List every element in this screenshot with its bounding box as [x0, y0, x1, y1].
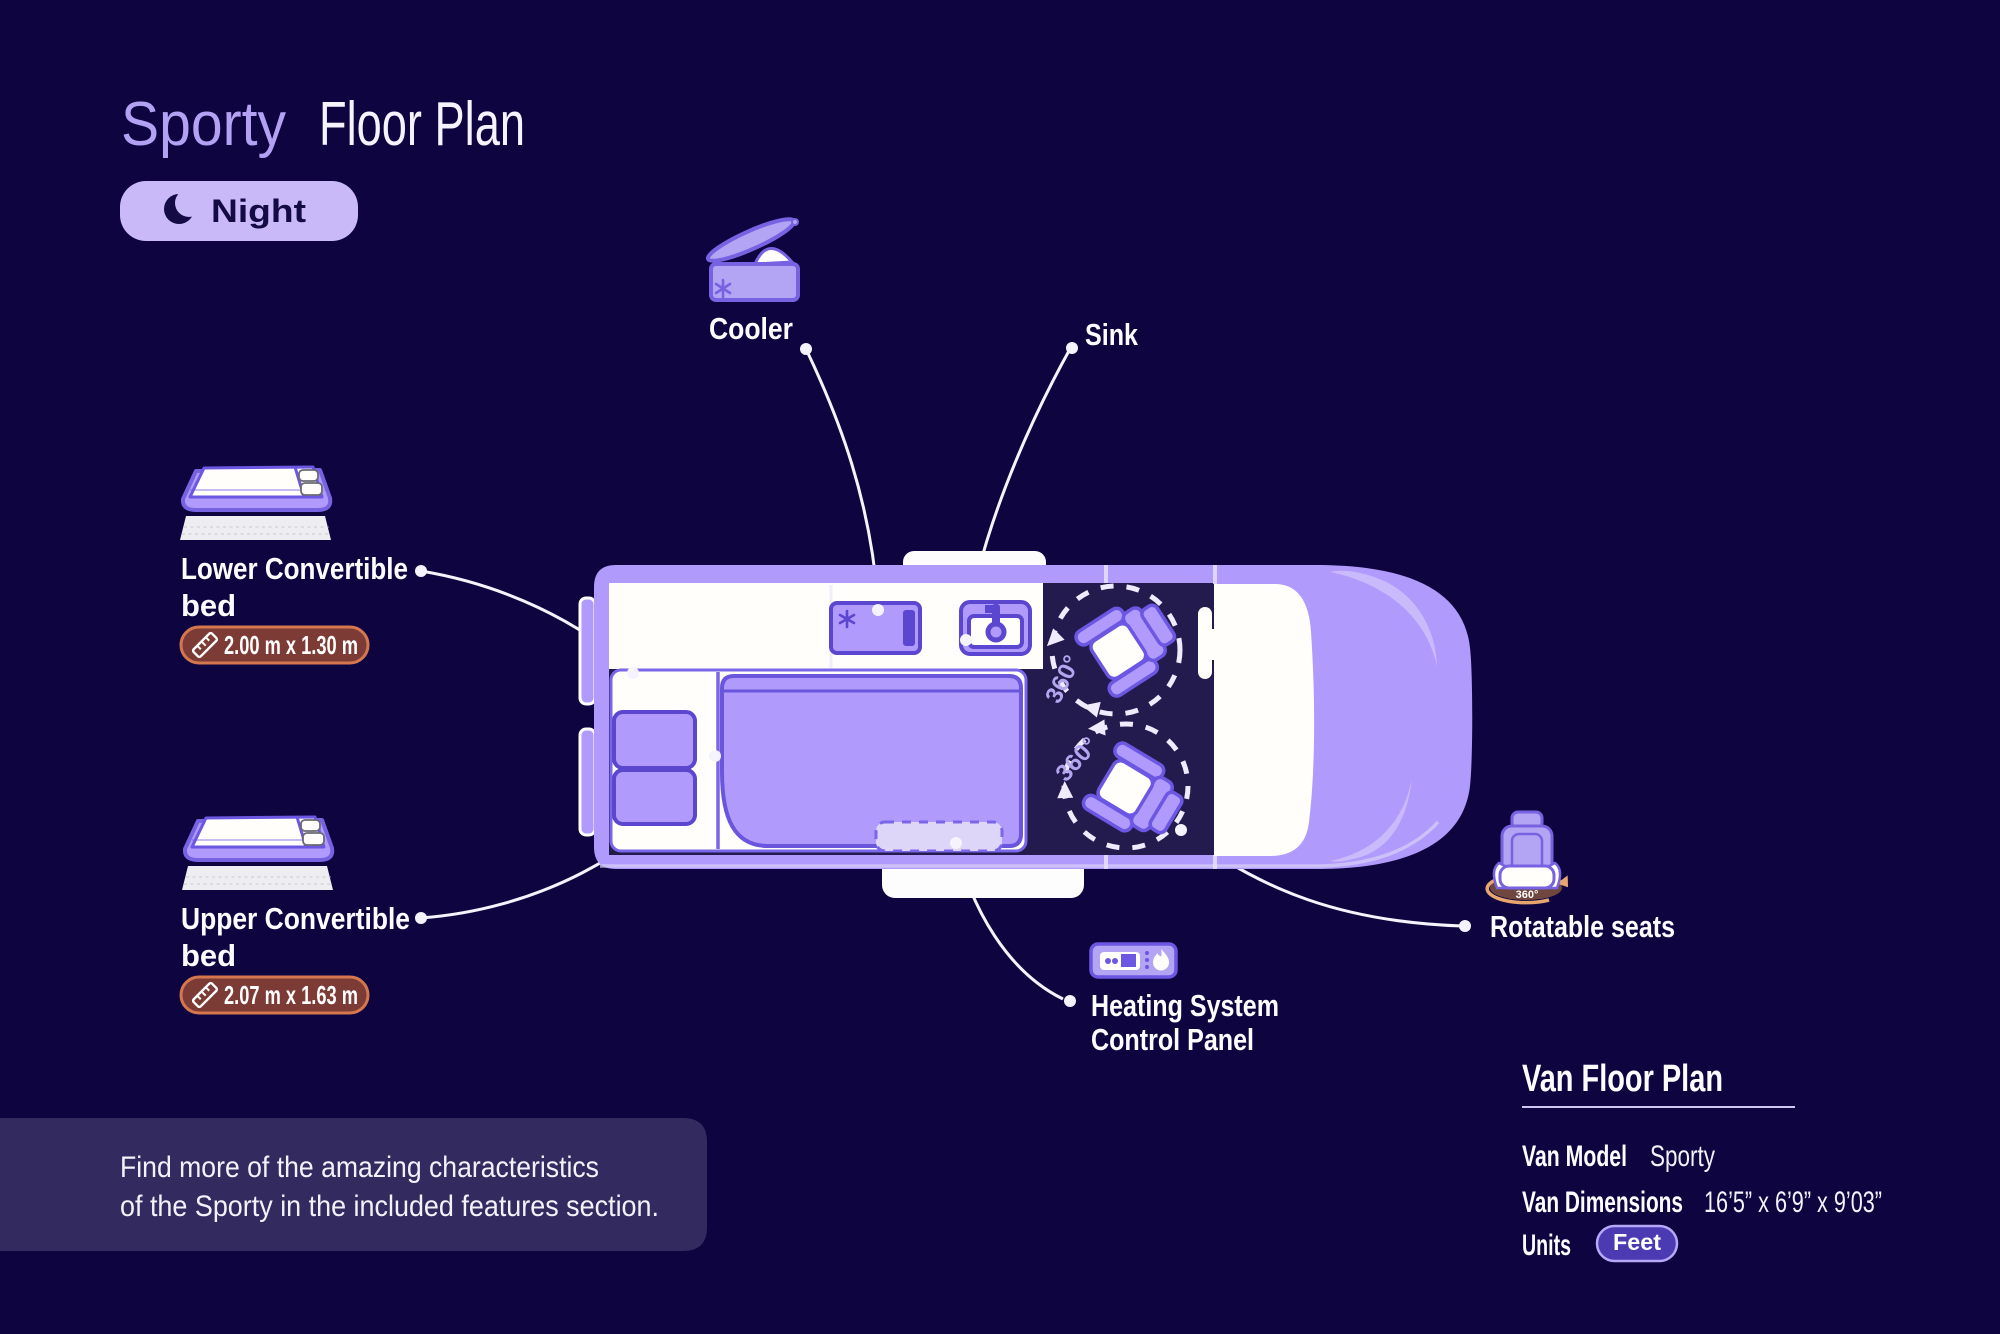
svg-text:Heating System: Heating System: [1091, 988, 1279, 1023]
svg-text:bed: bed: [181, 938, 236, 973]
svg-text:Lower Convertible: Lower Convertible: [181, 551, 408, 586]
svg-text:Van Floor Plan: Van Floor Plan: [1522, 1058, 1723, 1100]
svg-text:Feet: Feet: [1613, 1229, 1661, 1255]
svg-text:Van Model: Van Model: [1522, 1140, 1627, 1173]
svg-text:Sink: Sink: [1085, 317, 1139, 352]
svg-text:Rotatable seats: Rotatable seats: [1490, 909, 1675, 944]
svg-text:2.00 m x 1.30 m: 2.00 m x 1.30 m: [224, 630, 358, 660]
svg-text:Sporty: Sporty: [121, 90, 286, 159]
svg-text:Sporty: Sporty: [1650, 1140, 1715, 1173]
svg-text:360°: 360°: [1516, 889, 1539, 901]
svg-text:Units: Units: [1522, 1229, 1571, 1262]
svg-text:Van Dimensions: Van Dimensions: [1522, 1186, 1683, 1219]
svg-text:2.07 m x 1.63 m: 2.07 m x 1.63 m: [224, 980, 358, 1010]
svg-text:Upper Convertible: Upper Convertible: [181, 901, 410, 936]
svg-text:Control Panel: Control Panel: [1091, 1022, 1254, 1057]
svg-text:of the Sporty in the included: of the Sporty in the included features s…: [120, 1190, 659, 1223]
svg-text:16’5” x 6’9” x 9’03”: 16’5” x 6’9” x 9’03”: [1704, 1186, 1882, 1219]
svg-text:Cooler: Cooler: [709, 311, 793, 346]
svg-text:Floor Plan: Floor Plan: [319, 90, 525, 159]
svg-text:Night: Night: [211, 193, 306, 229]
svg-text:bed: bed: [181, 588, 236, 623]
svg-text:Find more of the amazing chara: Find more of the amazing characteristics: [120, 1151, 599, 1184]
